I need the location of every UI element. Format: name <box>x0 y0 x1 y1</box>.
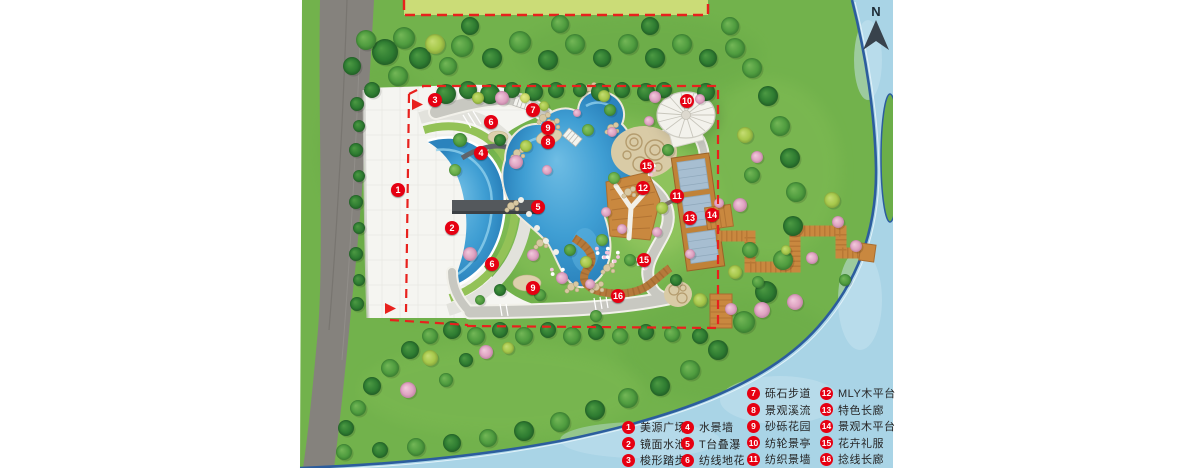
legend-item: 15花卉礼服 <box>820 435 896 452</box>
legend-item: 3梭形踏步 <box>622 452 686 468</box>
legend-label: 景观溪流 <box>765 402 811 418</box>
legend-label: 纺织景墙 <box>765 451 811 467</box>
legend-number-badge: 1 <box>622 421 635 434</box>
legend-label: 砂砾花园 <box>765 418 811 434</box>
legend-item: 16捻线长廊 <box>820 451 896 468</box>
legend-number-badge: 9 <box>747 420 760 433</box>
legend-item: 11纺织景墙 <box>747 451 811 468</box>
legend-label: 景观木平台 <box>838 418 896 434</box>
legend-item: 2镜面水池 <box>622 436 686 453</box>
legend-number-badge: 10 <box>747 436 760 449</box>
legend-number-badge: 15 <box>820 436 833 449</box>
legend-label: 镜面水池 <box>640 436 686 452</box>
legend-number-badge: 5 <box>681 437 694 450</box>
legend-column-3: 7砾石步道8景观溪流9砂砾花园10纺轮景亭11纺织景墙 <box>747 385 811 468</box>
top-phase-area <box>404 0 708 15</box>
legend-label: T台叠瀑 <box>699 436 741 452</box>
legend-item: 14景观木平台 <box>820 418 896 435</box>
legend-label: 花卉礼服 <box>838 435 884 451</box>
t-stage-runway <box>452 200 540 214</box>
legend-column-2: 4水景墙5T台叠瀑6纺线地花 <box>681 419 745 468</box>
legend-label: 梭形踏步 <box>640 452 686 468</box>
legend-label: 砾石步道 <box>765 385 811 401</box>
legend-item: 13特色长廊 <box>820 402 896 419</box>
legend-number-badge: 8 <box>747 403 760 416</box>
legend-item: 1美源广场 <box>622 419 686 436</box>
legend-item: 4水景墙 <box>681 419 745 436</box>
legend-number-badge: 12 <box>820 387 833 400</box>
landscape-master-plan: N 123456678991011121314151516 1美源广场2镜面水池… <box>0 0 1200 468</box>
legend-item: 5T台叠瀑 <box>681 436 745 453</box>
legend-item: 9砂砾花园 <box>747 418 811 435</box>
legend-number-badge: 4 <box>681 421 694 434</box>
legend-item: 12MLY木平台 <box>820 385 896 402</box>
legend-number-badge: 2 <box>622 437 635 450</box>
legend-label: 水景墙 <box>699 419 734 435</box>
legend-column-4: 12MLY木平台13特色长廊14景观木平台15花卉礼服16捻线长廊 <box>820 385 896 468</box>
legend-label: 纺轮景亭 <box>765 435 811 451</box>
legend-item: 8景观溪流 <box>747 402 811 419</box>
legend-number-badge: 3 <box>622 454 635 467</box>
legend-number-badge: 6 <box>681 454 694 467</box>
legend-item: 6纺线地花 <box>681 452 745 468</box>
legend-item: 7砾石步道 <box>747 385 811 402</box>
legend-label: 捻线长廊 <box>838 451 884 467</box>
legend-label: 特色长廊 <box>838 402 884 418</box>
legend-column-1: 1美源广场2镜面水池3梭形踏步 <box>622 419 686 468</box>
north-label: N <box>871 4 880 19</box>
legend-label: MLY木平台 <box>838 385 896 401</box>
site-plan-drawing: N <box>0 0 1200 468</box>
right-margin <box>893 0 1200 468</box>
legend-number-badge: 16 <box>820 453 833 466</box>
legend-number-badge: 11 <box>747 453 760 466</box>
legend-number-badge: 14 <box>820 420 833 433</box>
legend-item: 10纺轮景亭 <box>747 435 811 452</box>
legend-label: 美源广场 <box>640 419 686 435</box>
legend-number-badge: 13 <box>820 403 833 416</box>
legend-label: 纺线地花 <box>699 452 745 468</box>
legend-number-badge: 7 <box>747 387 760 400</box>
